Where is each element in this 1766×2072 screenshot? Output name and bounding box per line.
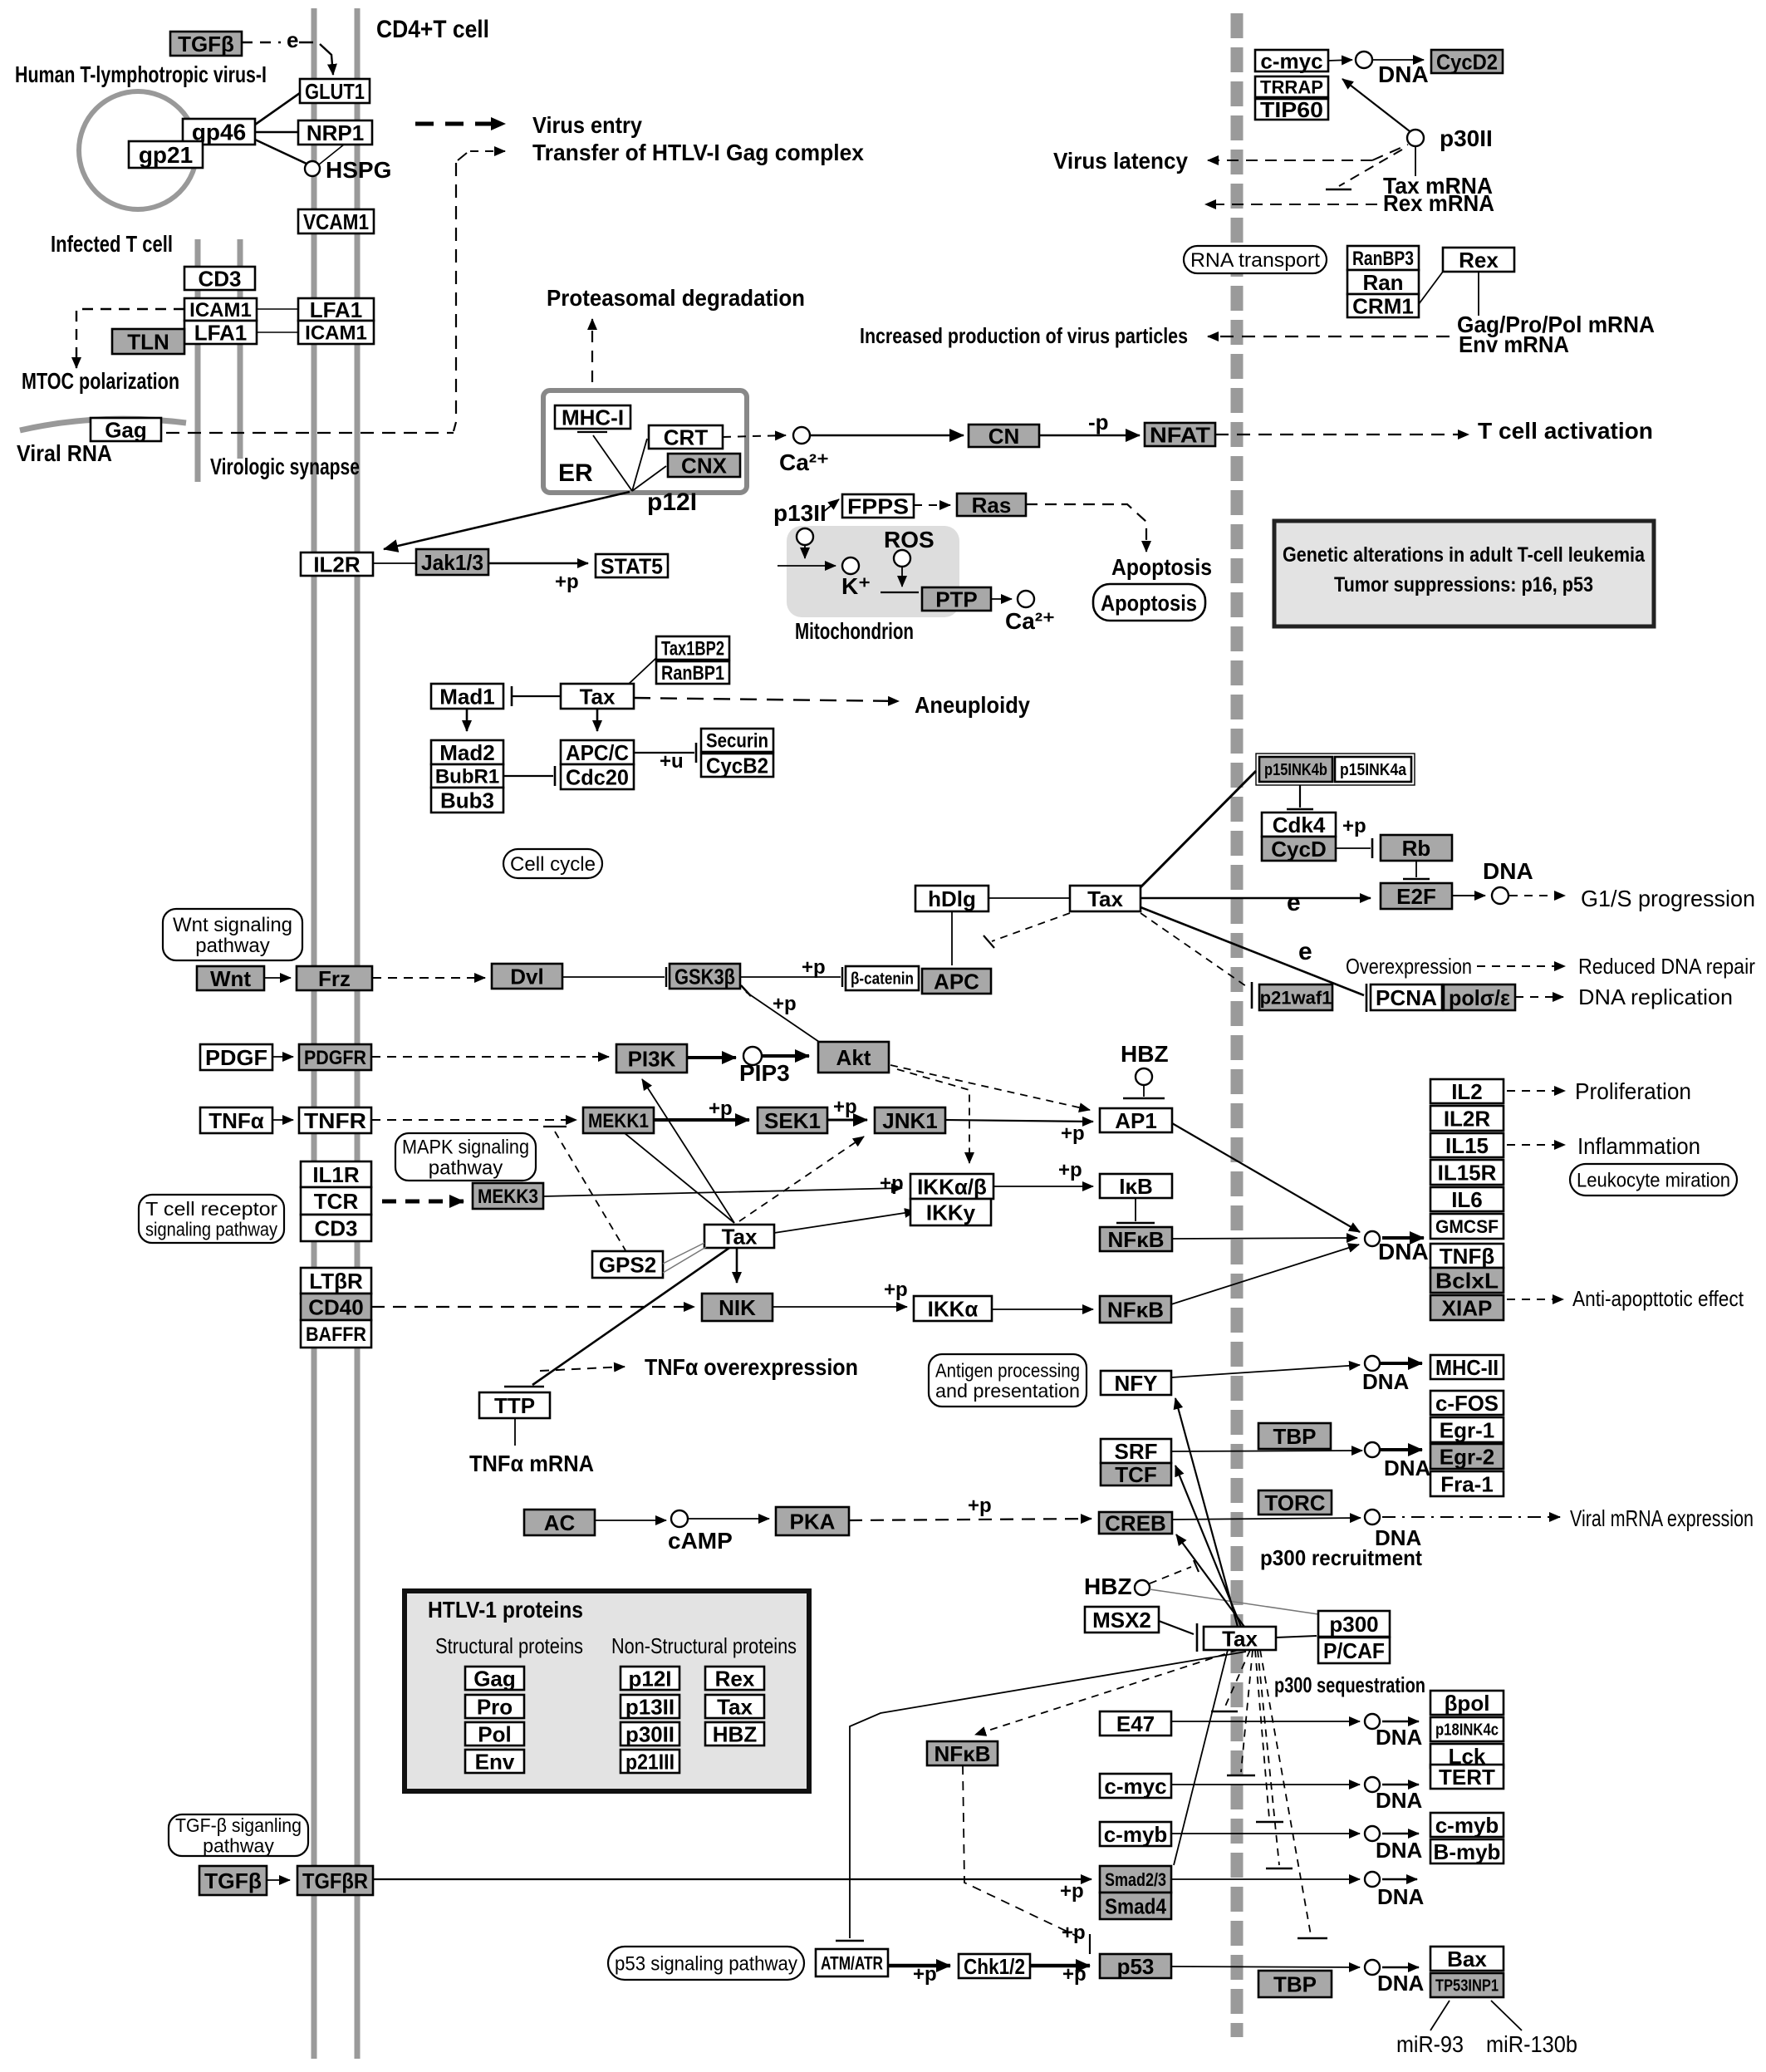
- svg-text:DNA: DNA: [1483, 858, 1533, 884]
- svg-text:Tumor suppressions: p16, p53: Tumor suppressions: p16, p53: [1334, 573, 1593, 597]
- svg-text:TCR: TCR: [314, 1189, 359, 1214]
- svg-text:LFA1: LFA1: [310, 297, 363, 322]
- svg-text:Gag: Gag: [473, 1666, 516, 1691]
- svg-text:STAT5: STAT5: [601, 553, 663, 578]
- svg-text:Env: Env: [475, 1749, 515, 1774]
- svg-text:CD3: CD3: [314, 1215, 357, 1240]
- svg-text:c-myc: c-myc: [1104, 1774, 1166, 1799]
- svg-text:+p: +p: [555, 571, 579, 593]
- svg-text:Wnt: Wnt: [210, 966, 251, 991]
- svg-text:miR-93: miR-93: [1396, 2031, 1464, 2057]
- svg-text:CycD2: CycD2: [1436, 49, 1498, 74]
- svg-text:Mitochondrion: Mitochondrion: [795, 618, 914, 644]
- svg-text:hDlg: hDlg: [928, 886, 976, 911]
- svg-text:Proliferation: Proliferation: [1575, 1078, 1691, 1104]
- svg-text:P/CAF: P/CAF: [1323, 1638, 1385, 1663]
- svg-text:PKA: PKA: [790, 1509, 836, 1534]
- svg-text:MSX2: MSX2: [1092, 1608, 1151, 1633]
- svg-text:Bax: Bax: [1447, 1947, 1487, 1971]
- svg-text:TGFβR: TGFβR: [302, 1868, 368, 1893]
- svg-text:DNA: DNA: [1378, 61, 1429, 87]
- svg-text:CRT: CRT: [664, 425, 709, 449]
- svg-text:ROS: ROS: [884, 527, 935, 552]
- svg-text:DNA: DNA: [1362, 1369, 1410, 1394]
- svg-text:Pro: Pro: [477, 1694, 513, 1719]
- svg-text:NFκB: NFκB: [1107, 1297, 1164, 1322]
- svg-text:IκB: IκB: [1119, 1174, 1153, 1199]
- svg-text:RNA transport: RNA transport: [1190, 249, 1320, 272]
- svg-text:CD40: CD40: [308, 1294, 363, 1319]
- svg-text:IL2R: IL2R: [313, 552, 361, 577]
- svg-text:TNFR: TNFR: [304, 1108, 366, 1133]
- svg-text:Rex: Rex: [715, 1666, 755, 1691]
- svg-text:Virus latency: Virus latency: [1053, 148, 1188, 174]
- svg-text:ICAM1: ICAM1: [189, 299, 252, 322]
- svg-text:IL2: IL2: [1451, 1079, 1483, 1104]
- svg-text:JNK1: JNK1: [882, 1108, 937, 1133]
- svg-text:e: e: [1287, 889, 1301, 916]
- svg-text:Overexpression: Overexpression: [1346, 954, 1472, 979]
- svg-text:+u: +u: [660, 750, 684, 773]
- svg-text:TGF-β siganling: TGF-β siganling: [175, 1814, 302, 1836]
- svg-text:p12I: p12I: [647, 489, 697, 516]
- svg-text:Cdk4: Cdk4: [1273, 813, 1326, 837]
- svg-text:Anti-apopttotic effect: Anti-apopttotic effect: [1572, 1286, 1744, 1311]
- svg-text:p18INK4c: p18INK4c: [1435, 1721, 1499, 1740]
- svg-text:+p: +p: [773, 993, 797, 1015]
- svg-text:+p: +p: [833, 1096, 857, 1118]
- svg-text:ATM/ATR: ATM/ATR: [821, 1952, 883, 1973]
- svg-text:TERT: TERT: [1439, 1765, 1495, 1790]
- svg-text:DNA replication: DNA replication: [1578, 984, 1733, 1009]
- svg-text:Viral RNA: Viral RNA: [17, 440, 112, 466]
- svg-text:NFY: NFY: [1115, 1371, 1158, 1396]
- svg-text:pathway: pathway: [203, 1834, 274, 1856]
- svg-text:T cell receptor: T cell receptor: [145, 1198, 277, 1220]
- svg-text:+p: +p: [884, 1279, 908, 1301]
- svg-text:Genetic alterations in adult T: Genetic alterations in adult T-cell leuk…: [1283, 543, 1646, 567]
- svg-text:Virus entry: Virus entry: [532, 112, 642, 138]
- svg-text:Tax: Tax: [1222, 1626, 1258, 1651]
- svg-text:e: e: [1298, 938, 1312, 965]
- svg-text:DNA: DNA: [1378, 1239, 1429, 1264]
- svg-text:GSK3β: GSK3β: [675, 964, 735, 989]
- svg-text:CD4+T cell: CD4+T cell: [376, 16, 489, 43]
- svg-text:+p: +p: [1061, 1122, 1085, 1145]
- svg-text:GPS2: GPS2: [599, 1252, 656, 1277]
- svg-text:Ras: Ras: [972, 493, 1012, 518]
- svg-text:Smad2/3: Smad2/3: [1105, 1869, 1166, 1890]
- svg-text:IKKα: IKKα: [928, 1296, 979, 1321]
- svg-text:Rex mRNA: Rex mRNA: [1383, 190, 1494, 216]
- svg-text:TTP: TTP: [494, 1393, 535, 1418]
- svg-text:IL1R: IL1R: [312, 1162, 360, 1187]
- svg-text:HBZ: HBZ: [1121, 1041, 1169, 1067]
- svg-text:APC/C: APC/C: [566, 740, 629, 765]
- svg-text:LTβR: LTβR: [309, 1269, 363, 1294]
- svg-text:p53: p53: [1117, 1954, 1155, 1979]
- svg-text:BclxL: BclxL: [1435, 1268, 1499, 1293]
- svg-text:E2F: E2F: [1396, 884, 1436, 909]
- svg-text:TLN: TLN: [127, 329, 169, 354]
- svg-text:ER: ER: [558, 459, 593, 487]
- svg-text:Increased production of virus: Increased production of virus particles: [860, 323, 1188, 348]
- svg-text:VCAM1: VCAM1: [303, 209, 369, 234]
- svg-text:p30II: p30II: [625, 1721, 675, 1746]
- svg-text:RanBP3: RanBP3: [1352, 248, 1414, 270]
- svg-text:CD3: CD3: [198, 266, 241, 291]
- svg-text:signaling pathway: signaling pathway: [145, 1218, 277, 1240]
- svg-text:HTLV-1 proteins: HTLV-1 proteins: [428, 1597, 583, 1623]
- svg-text:p13II: p13II: [773, 500, 827, 526]
- svg-text:pathway: pathway: [195, 935, 269, 957]
- svg-text:Structural proteins: Structural proteins: [435, 1633, 583, 1658]
- svg-text:MHC-I: MHC-I: [562, 405, 624, 430]
- svg-text:IL15: IL15: [1445, 1133, 1489, 1158]
- svg-text:Virologic synapse: Virologic synapse: [210, 454, 360, 479]
- svg-text:e: e: [287, 27, 298, 52]
- svg-text:CycB2: CycB2: [706, 753, 768, 778]
- svg-text:βpol: βpol: [1445, 1691, 1490, 1716]
- svg-text:CNX: CNX: [681, 453, 728, 478]
- svg-text:Smad4: Smad4: [1105, 1893, 1166, 1918]
- svg-text:IL2R: IL2R: [1444, 1106, 1491, 1131]
- svg-text:+p: +p: [709, 1097, 733, 1120]
- svg-text:Tax1BP2: Tax1BP2: [661, 638, 724, 660]
- svg-text:p300 sequestration: p300 sequestration: [1274, 1672, 1425, 1697]
- svg-text:+p: +p: [880, 1172, 904, 1195]
- svg-text:TNFα overexpression: TNFα overexpression: [645, 1354, 858, 1380]
- svg-text:Akt: Akt: [836, 1045, 871, 1070]
- svg-text:Gag: Gag: [105, 417, 147, 442]
- svg-text:c-myb: c-myb: [1104, 1822, 1168, 1847]
- svg-text:Non-Structural proteins: Non-Structural proteins: [611, 1633, 797, 1658]
- svg-text:p15INK4a: p15INK4a: [1340, 761, 1407, 779]
- svg-text:TBP: TBP: [1273, 1424, 1317, 1449]
- svg-text:TNFα mRNA: TNFα mRNA: [469, 1451, 594, 1476]
- svg-text:pathway: pathway: [429, 1157, 503, 1180]
- svg-text:Inflammation: Inflammation: [1577, 1133, 1700, 1159]
- svg-text:Apoptosis: Apoptosis: [1101, 591, 1197, 616]
- svg-text:p300: p300: [1329, 1612, 1378, 1637]
- svg-text:Frz: Frz: [318, 966, 351, 991]
- svg-text:SRF: SRF: [1115, 1439, 1158, 1464]
- svg-text:+p: +p: [1062, 1922, 1086, 1944]
- svg-text:NRP1: NRP1: [307, 120, 364, 145]
- svg-text:CREB: CREB: [1105, 1510, 1166, 1535]
- svg-text:Egr-2: Egr-2: [1440, 1444, 1494, 1469]
- svg-text:TGFβ: TGFβ: [204, 1868, 262, 1893]
- svg-text:ICAM1: ICAM1: [305, 322, 367, 345]
- svg-text:AC: AC: [544, 1510, 576, 1535]
- svg-text:TP53INP1: TP53INP1: [1435, 1977, 1499, 1996]
- svg-text:Antigen processing: Antigen processing: [935, 1360, 1080, 1382]
- svg-text:Ca²⁺: Ca²⁺: [1005, 608, 1055, 634]
- svg-text:MHC-II: MHC-II: [1435, 1355, 1499, 1380]
- svg-text:HBZ: HBZ: [1084, 1574, 1132, 1599]
- svg-text:SEK1: SEK1: [764, 1108, 821, 1133]
- svg-text:Ca²⁺: Ca²⁺: [779, 449, 829, 475]
- svg-text:Tax: Tax: [722, 1224, 758, 1249]
- svg-text:T cell activation: T cell activation: [1478, 418, 1653, 444]
- svg-text:Fra-1: Fra-1: [1440, 1471, 1494, 1496]
- svg-text:TRRAP: TRRAP: [1260, 76, 1323, 97]
- svg-text:polσ/ε: polσ/ε: [1449, 985, 1510, 1010]
- svg-text:MTOC polarization: MTOC polarization: [22, 368, 179, 394]
- svg-text:Infected T cell: Infected T cell: [51, 231, 173, 257]
- svg-text:Tax: Tax: [717, 1694, 753, 1719]
- svg-text:Mad1: Mad1: [439, 684, 494, 709]
- svg-text:GMCSF: GMCSF: [1435, 1216, 1499, 1237]
- svg-text:Env mRNA: Env mRNA: [1459, 331, 1569, 357]
- svg-text:PDGF: PDGF: [205, 1045, 267, 1070]
- svg-text:+p: +p: [1058, 1159, 1082, 1181]
- svg-text:FPPS: FPPS: [847, 493, 909, 518]
- svg-text:TBP: TBP: [1273, 1971, 1317, 1996]
- svg-text:Ran: Ran: [1362, 270, 1403, 295]
- svg-text:+p: +p: [1060, 1880, 1084, 1903]
- svg-text:NFAT: NFAT: [1150, 422, 1210, 447]
- svg-text:PI3K: PI3K: [628, 1046, 676, 1071]
- svg-text:CycD: CycD: [1271, 837, 1326, 862]
- svg-text:PDGFR: PDGFR: [304, 1047, 366, 1069]
- svg-text:Rex: Rex: [1459, 248, 1499, 273]
- svg-text:+p: +p: [802, 956, 826, 979]
- svg-text:p15INK4b: p15INK4b: [1264, 761, 1327, 779]
- svg-text:E47: E47: [1116, 1711, 1155, 1736]
- svg-text:CN: CN: [988, 424, 1020, 449]
- svg-text:HSPG: HSPG: [326, 157, 391, 183]
- svg-text:Viral mRNA expression: Viral mRNA expression: [1570, 1505, 1754, 1531]
- svg-text:BAFFR: BAFFR: [306, 1323, 366, 1346]
- svg-text:PCNA: PCNA: [1376, 985, 1437, 1010]
- svg-text:Aneuploidy: Aneuploidy: [915, 692, 1030, 718]
- svg-text:miR-130b: miR-130b: [1486, 2031, 1577, 2057]
- svg-text:AP1: AP1: [1115, 1108, 1157, 1133]
- svg-text:IKKy: IKKy: [926, 1200, 976, 1225]
- svg-text:TNFβ: TNFβ: [1440, 1244, 1494, 1269]
- svg-text:p12I: p12I: [628, 1666, 671, 1691]
- svg-text:B-myb: B-myb: [1434, 1839, 1501, 1864]
- svg-text:Jak1/3: Jak1/3: [421, 550, 483, 575]
- svg-text:Tax: Tax: [580, 684, 616, 709]
- svg-text:c-myb: c-myb: [1435, 1813, 1499, 1838]
- svg-text:DNA: DNA: [1376, 1838, 1423, 1863]
- svg-text:-p: -p: [1088, 410, 1109, 435]
- svg-text:TNFα: TNFα: [208, 1108, 264, 1133]
- svg-text:NIK: NIK: [719, 1295, 756, 1320]
- svg-text:c-FOS: c-FOS: [1435, 1391, 1499, 1416]
- svg-text:+p: +p: [1342, 815, 1366, 837]
- svg-text:c-myc: c-myc: [1260, 48, 1322, 73]
- svg-text:Chk1/2: Chk1/2: [964, 1954, 1025, 1979]
- svg-text:Dvl: Dvl: [510, 964, 543, 989]
- svg-text:IL15R: IL15R: [1438, 1160, 1497, 1185]
- svg-text:DNA: DNA: [1377, 1971, 1425, 1996]
- svg-text:Wnt signaling: Wnt signaling: [173, 914, 292, 936]
- svg-text:Transfer of HTLV-I Gag complex: Transfer of HTLV-I Gag complex: [532, 140, 864, 165]
- svg-text:IKKα/β: IKKα/β: [917, 1174, 987, 1199]
- svg-text:HBZ: HBZ: [713, 1721, 758, 1746]
- svg-text:p21III: p21III: [625, 1749, 675, 1774]
- svg-text:p30II: p30II: [1440, 125, 1493, 151]
- svg-text:Bub3: Bub3: [440, 788, 494, 813]
- svg-text:CRM1: CRM1: [1352, 293, 1414, 318]
- svg-text:MEKK1: MEKK1: [588, 1110, 649, 1132]
- svg-text:LFA1: LFA1: [194, 320, 248, 345]
- svg-text:DNA: DNA: [1376, 1725, 1423, 1750]
- svg-text:p300 recruitment: p300 recruitment: [1260, 1545, 1422, 1570]
- svg-text:BubR1: BubR1: [435, 766, 499, 788]
- svg-text:TIP60: TIP60: [1260, 97, 1323, 122]
- svg-text:PTP: PTP: [935, 587, 978, 611]
- svg-text:G1/S progression: G1/S progression: [1581, 886, 1755, 911]
- svg-text:p53 signaling pathway: p53 signaling pathway: [615, 1953, 797, 1976]
- svg-text:GLUT1: GLUT1: [305, 79, 365, 104]
- svg-text:and presentation: and presentation: [935, 1380, 1080, 1402]
- svg-text:PIP3: PIP3: [739, 1060, 790, 1086]
- svg-text:NFκB: NFκB: [1108, 1227, 1165, 1252]
- svg-text:TCF: TCF: [1115, 1462, 1157, 1487]
- svg-text:Apoptosis: Apoptosis: [1111, 554, 1212, 580]
- svg-text:+p: +p: [1062, 1963, 1087, 1986]
- svg-text:p21waf1: p21waf1: [1260, 987, 1332, 1008]
- svg-text:DNA: DNA: [1384, 1456, 1431, 1480]
- svg-text:K⁺: K⁺: [841, 573, 871, 599]
- svg-text:TORC: TORC: [1264, 1490, 1325, 1515]
- svg-text:Cdc20: Cdc20: [566, 764, 629, 789]
- svg-text:cAMP: cAMP: [668, 1528, 733, 1554]
- svg-text:XIAP: XIAP: [1442, 1295, 1493, 1320]
- svg-text:Egr-1: Egr-1: [1440, 1417, 1494, 1442]
- svg-text:Leukocyte miration: Leukocyte miration: [1577, 1170, 1730, 1192]
- svg-text:p13II: p13II: [625, 1694, 675, 1719]
- svg-text:Reduced DNA repair: Reduced DNA repair: [1578, 954, 1755, 979]
- svg-text:DNA: DNA: [1377, 1884, 1425, 1909]
- svg-text:IL6: IL6: [1451, 1187, 1483, 1212]
- svg-text:Cell cycle: Cell cycle: [510, 853, 596, 876]
- svg-text:β-catenin: β-catenin: [851, 970, 914, 989]
- svg-text:gp21: gp21: [139, 142, 193, 168]
- svg-text:Human T-lymphotropic virus-I: Human T-lymphotropic virus-I: [15, 61, 267, 87]
- svg-text:Proteasomal degradation: Proteasomal degradation: [547, 285, 805, 311]
- svg-text:Pol: Pol: [478, 1721, 511, 1746]
- svg-text:Tax: Tax: [1087, 886, 1123, 911]
- svg-text:APC: APC: [934, 969, 979, 994]
- svg-text:MAPK signaling: MAPK signaling: [402, 1137, 529, 1159]
- svg-text:NFκB: NFκB: [935, 1741, 991, 1766]
- svg-text:+p: +p: [913, 1963, 937, 1986]
- svg-text:Rb: Rb: [1402, 836, 1431, 861]
- svg-text:Securin: Securin: [706, 730, 768, 753]
- svg-text:TGFβ: TGFβ: [178, 32, 234, 56]
- svg-text:Mad2: Mad2: [439, 740, 494, 765]
- svg-text:MEKK3: MEKK3: [478, 1186, 538, 1208]
- svg-text:DNA: DNA: [1376, 1788, 1423, 1813]
- svg-text:+p: +p: [968, 1495, 992, 1517]
- svg-text:RanBP1: RanBP1: [661, 662, 724, 685]
